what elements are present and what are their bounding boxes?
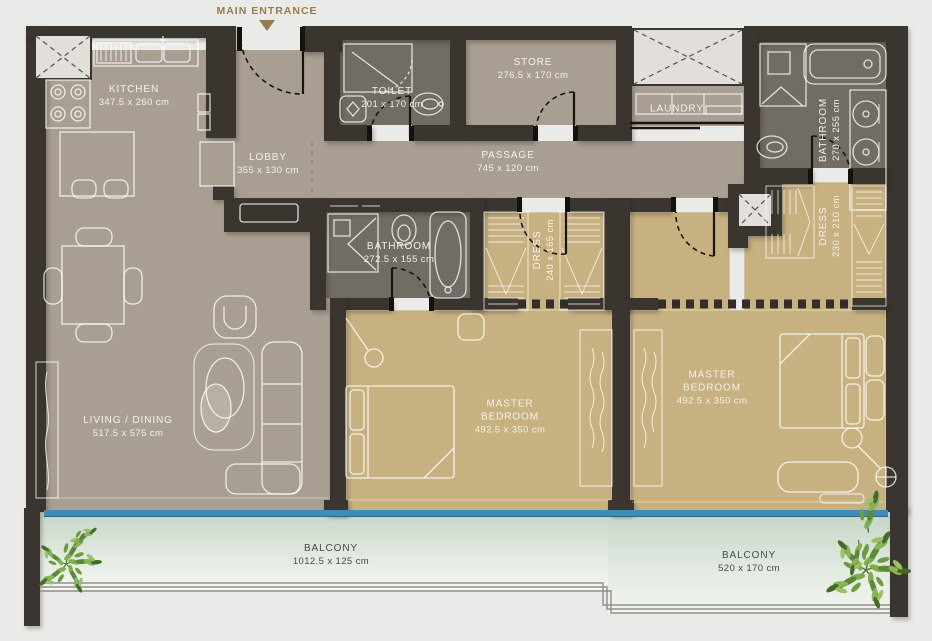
wardrobe-icon [766,186,886,306]
wardrobe-icon [484,212,604,310]
bathroom-top-fixtures-icon [757,44,886,210]
bed-icon [634,330,896,503]
main-entrance-label: MAIN ENTRANCE [216,5,317,17]
window-sill-lines [48,498,884,502]
doors [240,30,850,300]
living-furniture-icon [36,204,302,498]
plant-icon [824,489,914,611]
furniture-overlay [0,0,932,641]
laundry-fixtures-icon [630,94,744,128]
bed-icon [346,314,612,486]
balcony-railing [40,583,890,613]
toilet-fixtures-icon [340,44,443,122]
bathroom-mid-fixtures-icon [328,206,466,298]
main-entrance-text: MAIN ENTRANCE [216,5,317,17]
floor-plan: MAIN ENTRANCE KITCHEN 347.5 x 260 cm LOB… [0,0,932,641]
entrance-arrow-icon [259,20,275,31]
kitchen-fixtures-icon [46,36,234,198]
